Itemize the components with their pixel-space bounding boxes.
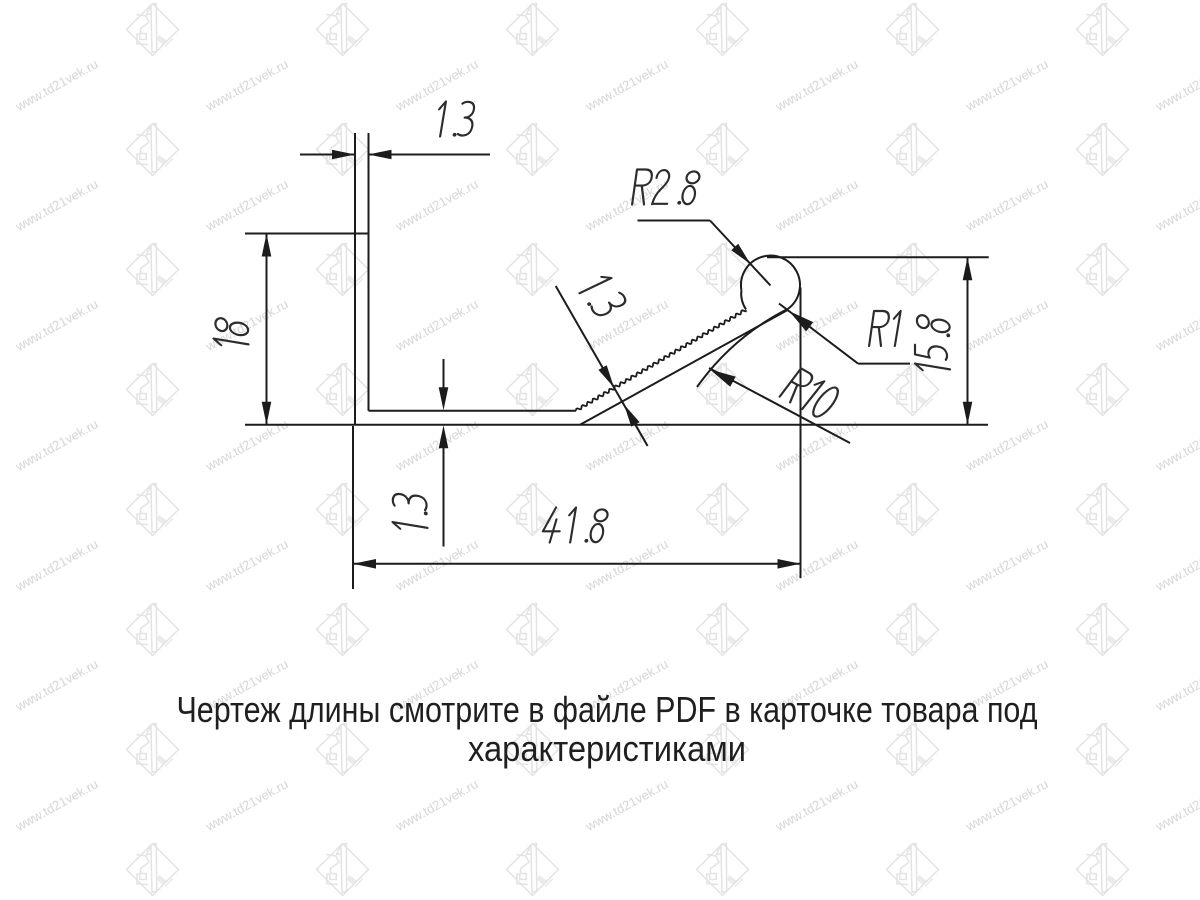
svg-text:характеристиками: характеристиками: [468, 728, 746, 769]
svg-text:Чертеж длины смотрите в файле: Чертеж длины смотрите в файле PDF в карт…: [177, 689, 1038, 730]
